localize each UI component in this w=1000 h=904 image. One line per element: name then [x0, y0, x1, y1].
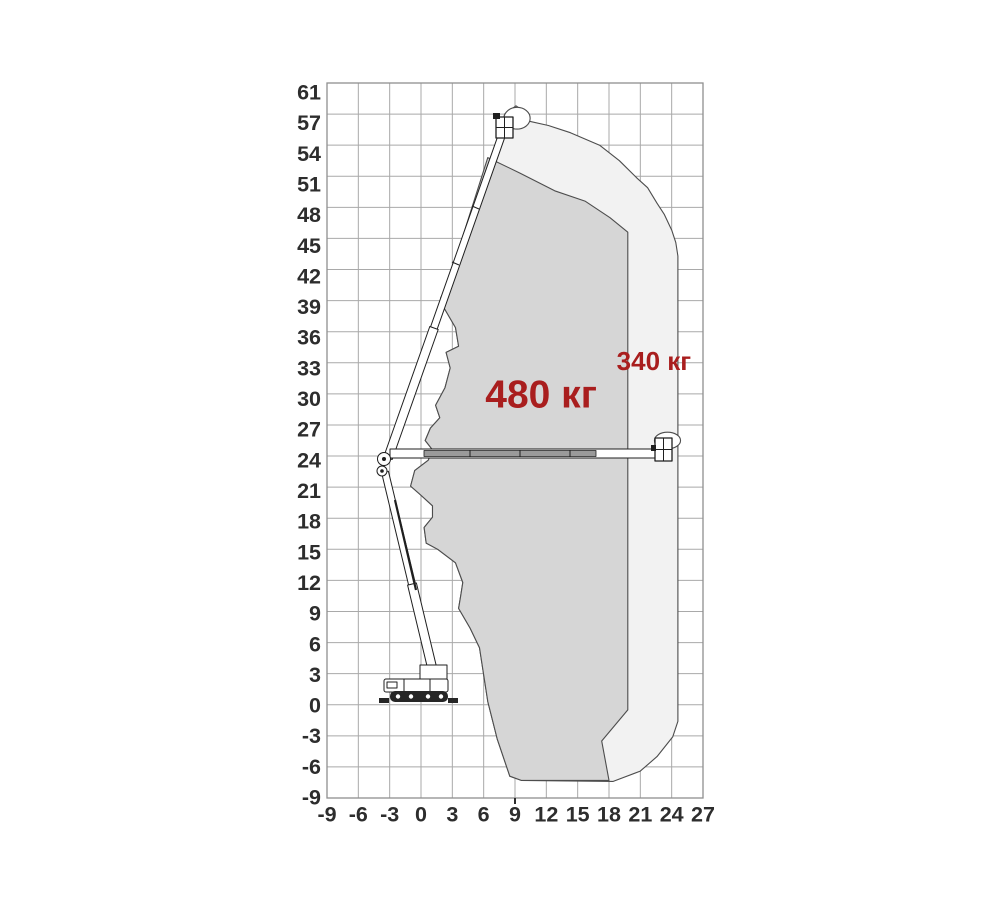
y-tick-label: 57	[297, 111, 321, 135]
x-tick-label: 12	[534, 803, 558, 827]
x-tick-label: 18	[597, 803, 621, 827]
lift-cylinder	[395, 500, 416, 590]
y-tick-label: 61	[297, 81, 321, 105]
y-tick-label: 45	[297, 234, 321, 258]
working-envelope-chart: 61575451484542393633302724211815129630-3…	[0, 0, 1000, 904]
x-tick-label: 27	[691, 803, 715, 827]
wheel-hub	[426, 694, 430, 698]
y-tick-label: 12	[297, 571, 321, 595]
x-tick-label: 3	[446, 803, 458, 827]
y-tick-label: 18	[297, 510, 321, 534]
x-tick-label: 6	[478, 803, 490, 827]
diagram-canvas: 61575451484542393633302724211815129630-3…	[0, 0, 1000, 904]
y-tick-label: 9	[309, 602, 321, 626]
x-tick-label: -9	[317, 803, 336, 827]
x-tick-label: 15	[566, 803, 590, 827]
y-tick-label: 27	[297, 418, 321, 442]
y-tick-label: 30	[297, 387, 321, 411]
turret	[420, 665, 447, 680]
outrigger-pad	[448, 698, 458, 703]
y-tick-label: 48	[297, 203, 321, 227]
y-tick-label: 0	[309, 694, 321, 718]
x-tick-label: -6	[349, 803, 368, 827]
knuckle-pin	[382, 457, 386, 461]
y-tick-label: 42	[297, 264, 321, 288]
x-tick-label: 9	[509, 803, 521, 827]
x-tick-label: -3	[380, 803, 399, 827]
y-tick-label: 6	[309, 632, 321, 656]
y-tick-label: 39	[297, 295, 321, 319]
y-tick-label: 51	[297, 172, 321, 196]
y-tick-label: 36	[297, 326, 321, 350]
outrigger-pad	[379, 698, 389, 703]
y-tick-label: 24	[297, 448, 321, 472]
capacity-label-inner: 480 кг	[485, 374, 597, 417]
y-tick-label: 33	[297, 356, 321, 380]
y-tick-label: 3	[309, 663, 321, 687]
basket-top	[493, 113, 513, 138]
y-tick-label: -3	[302, 724, 321, 748]
capacity-label-outer: 340 кг	[617, 346, 692, 376]
wheel-hub	[396, 694, 400, 698]
knuckle-pin	[380, 469, 384, 473]
cab-window	[387, 682, 397, 688]
wheel-hub	[439, 694, 443, 698]
x-tick-label: 0	[415, 803, 427, 827]
y-tick-label: 15	[297, 540, 321, 564]
wheel-hub	[409, 694, 413, 698]
x-tick-label: 21	[628, 803, 652, 827]
y-tick-label: 21	[297, 479, 321, 503]
y-tick-label: -6	[302, 755, 321, 779]
x-tick-label: 24	[660, 803, 684, 827]
y-tick-label: 54	[297, 142, 321, 166]
